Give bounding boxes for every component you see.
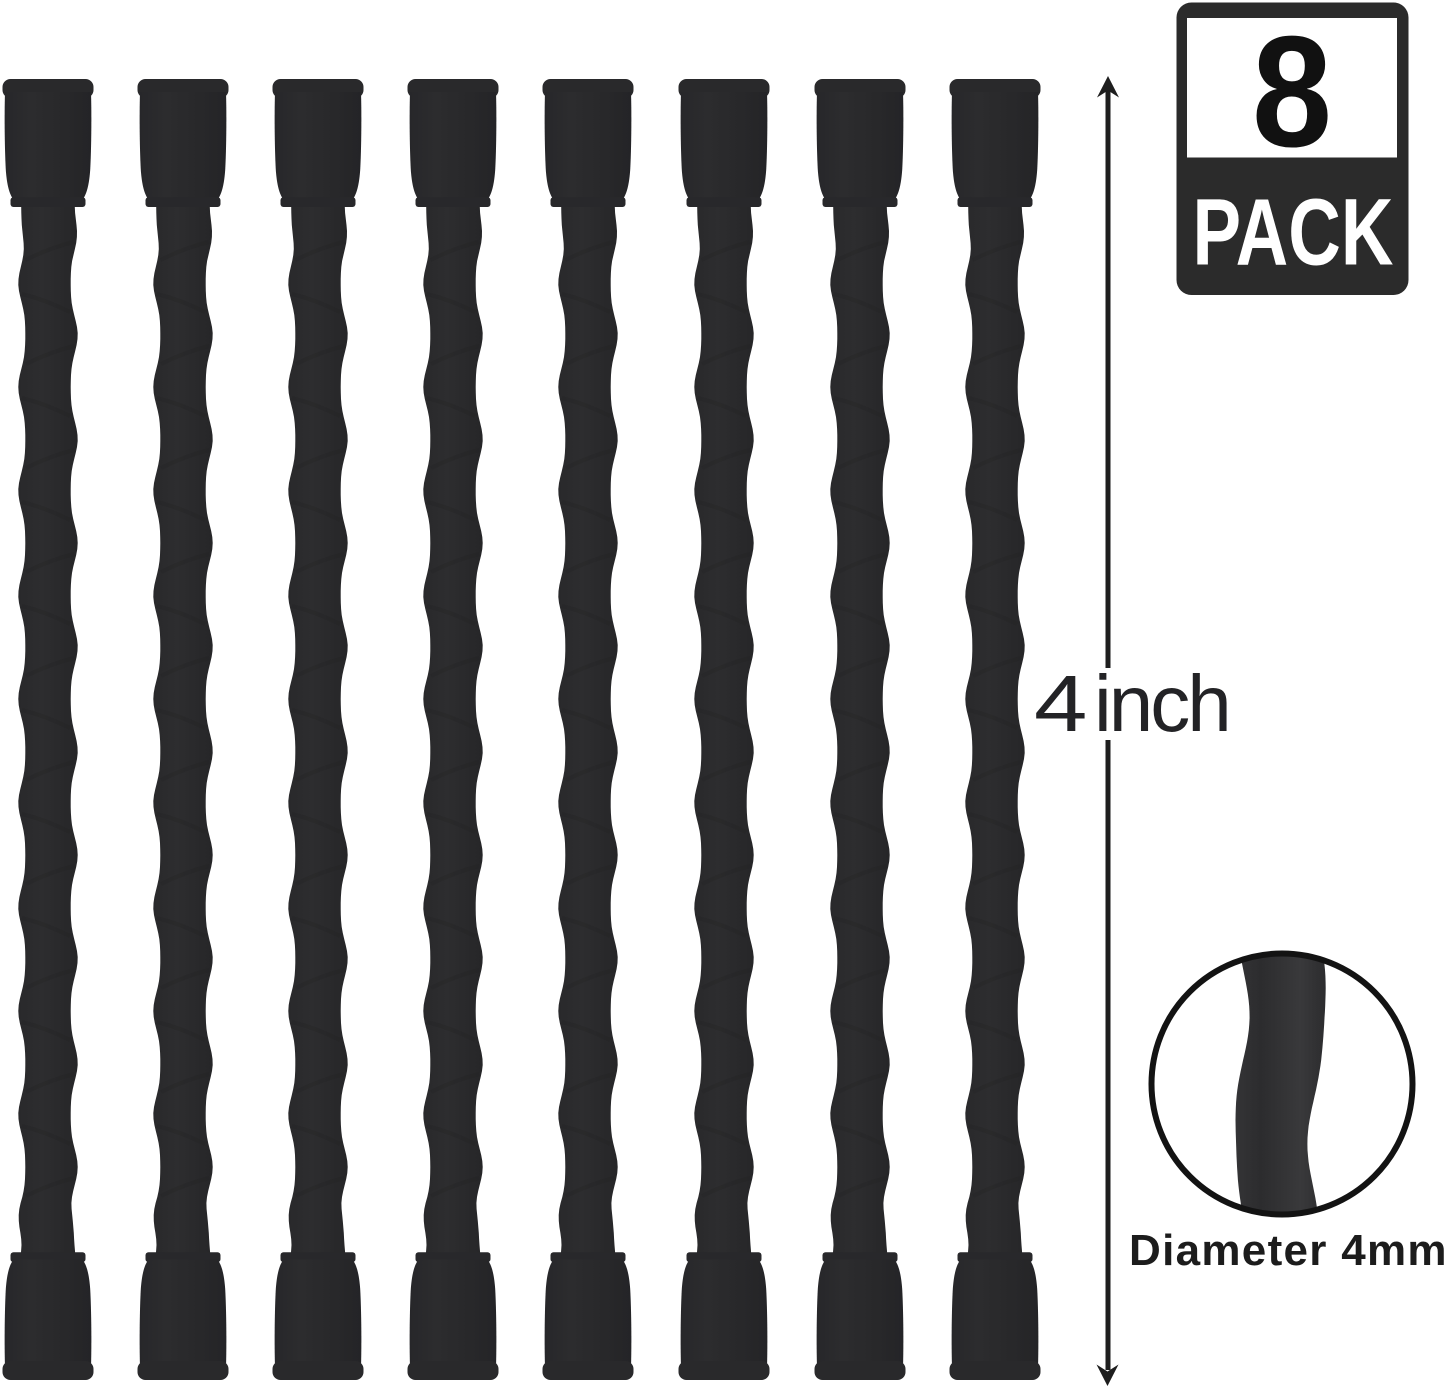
svg-text:PACK: PACK [1193,180,1394,286]
svg-text:4: 4 [1034,659,1087,749]
svg-text:Diameter 4mm: Diameter 4mm [1129,1226,1445,1275]
svg-text:inch: inch [1094,659,1229,748]
svg-text:8: 8 [1252,4,1332,180]
